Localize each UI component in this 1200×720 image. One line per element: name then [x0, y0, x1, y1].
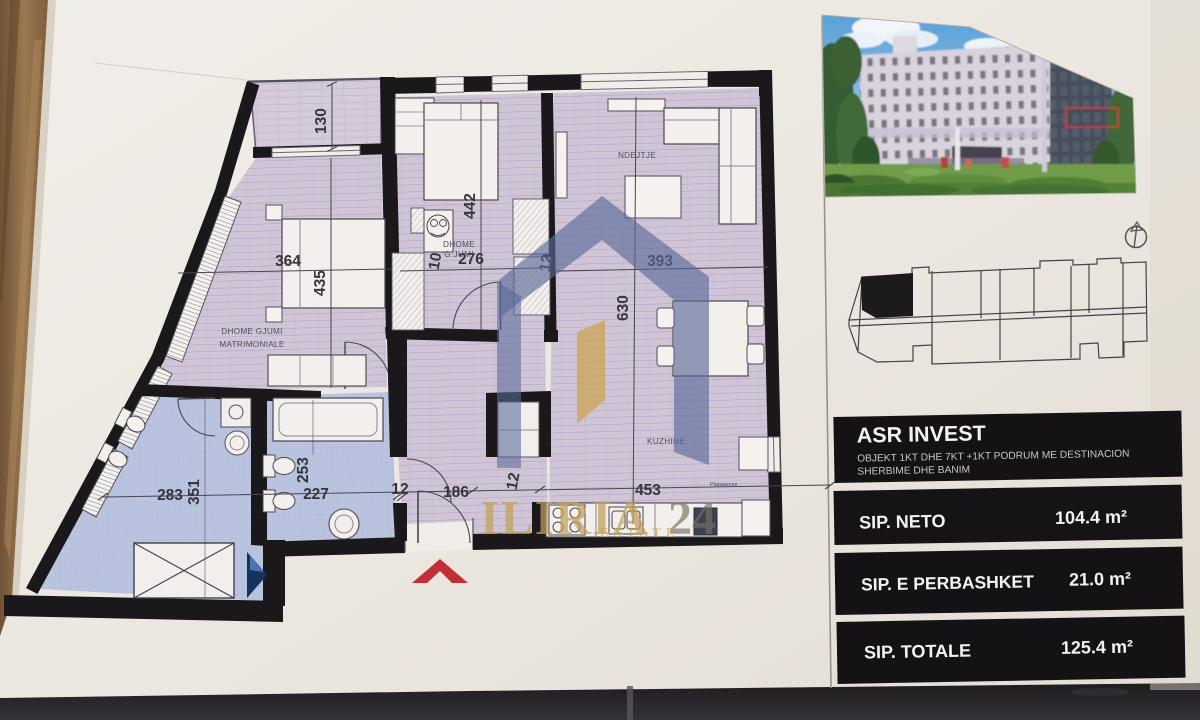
- svg-text:SIP. NETO: SIP. NETO: [859, 511, 946, 533]
- svg-text:MATRIMONIALE: MATRIMONIALE: [219, 340, 285, 349]
- svg-text:104.4 m²: 104.4 m²: [1055, 507, 1127, 528]
- svg-text:351: 351: [186, 479, 203, 505]
- svg-text:253: 253: [295, 457, 312, 483]
- svg-text:12: 12: [504, 471, 524, 491]
- svg-text:G.JUMI: G.JUMI: [444, 250, 474, 259]
- svg-text:DHOME GJUMI: DHOME GJUMI: [221, 327, 283, 336]
- svg-text:NDEJTJE: NDEJTJE: [618, 151, 656, 160]
- svg-text:DHOME: DHOME: [443, 240, 475, 249]
- svg-text:130: 130: [313, 108, 330, 134]
- svg-text:ASR INVEST: ASR INVEST: [856, 421, 985, 447]
- svg-text:435: 435: [312, 270, 329, 296]
- svg-text:Pjatalarese: Pjatalarese: [710, 482, 738, 488]
- svg-text:SHERBIME DHE BANIM: SHERBIME DHE BANIM: [857, 465, 970, 478]
- svg-text:125.4 m²: 125.4 m²: [1061, 637, 1133, 658]
- svg-text:21.0 m²: 21.0 m²: [1069, 569, 1131, 590]
- svg-text:12: 12: [391, 481, 408, 498]
- svg-text:186: 186: [443, 484, 469, 501]
- svg-text:SIP. E PERBASHKET: SIP. E PERBASHKET: [861, 571, 1034, 594]
- svg-text:10: 10: [426, 251, 446, 271]
- svg-text:630: 630: [615, 295, 632, 321]
- svg-text:364: 364: [275, 253, 301, 270]
- svg-text:442: 442: [462, 193, 479, 219]
- svg-text:283: 283: [157, 487, 183, 504]
- svg-text:SIP. TOTALE: SIP. TOTALE: [864, 641, 971, 663]
- svg-text:227: 227: [303, 486, 329, 503]
- svg-text:ESTATE: ESTATE: [600, 526, 679, 541]
